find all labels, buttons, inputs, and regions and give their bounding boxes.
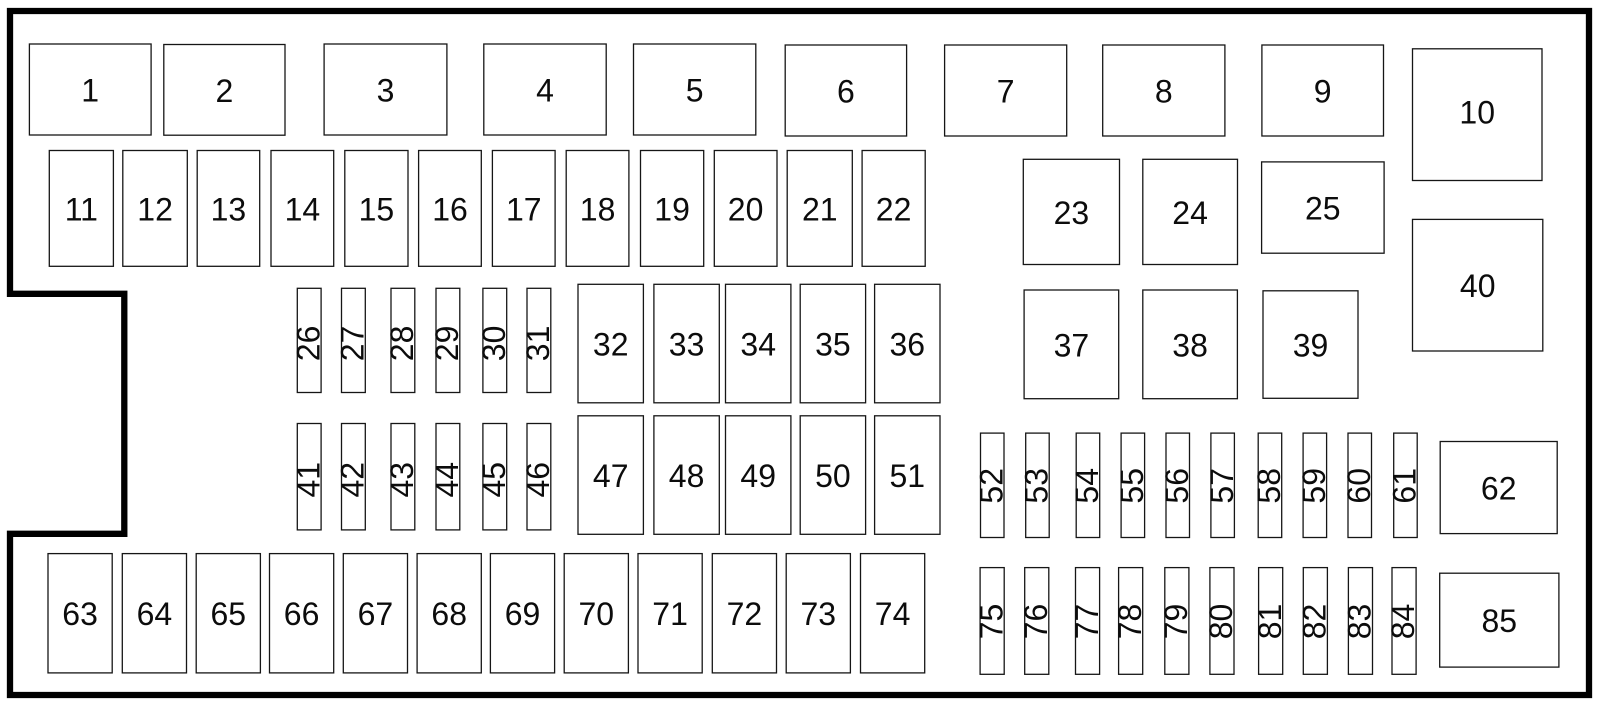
- svg-text:55: 55: [1114, 468, 1150, 504]
- svg-text:60: 60: [1341, 468, 1377, 504]
- svg-text:29: 29: [429, 326, 465, 362]
- svg-text:78: 78: [1112, 604, 1148, 640]
- svg-text:11: 11: [65, 191, 98, 227]
- svg-text:41: 41: [290, 462, 326, 498]
- svg-text:35: 35: [815, 327, 851, 363]
- svg-text:30: 30: [476, 326, 512, 362]
- svg-text:12: 12: [137, 191, 173, 227]
- svg-text:17: 17: [506, 191, 542, 227]
- svg-text:50: 50: [815, 458, 851, 494]
- svg-text:79: 79: [1158, 604, 1194, 640]
- svg-text:34: 34: [740, 327, 776, 363]
- svg-text:72: 72: [727, 596, 763, 632]
- svg-text:10: 10: [1459, 95, 1495, 131]
- svg-text:65: 65: [211, 596, 247, 632]
- svg-text:44: 44: [429, 462, 465, 498]
- svg-text:69: 69: [505, 596, 541, 632]
- svg-text:4: 4: [536, 73, 554, 109]
- svg-text:18: 18: [580, 191, 616, 227]
- svg-text:28: 28: [384, 326, 420, 362]
- svg-text:81: 81: [1252, 604, 1288, 640]
- svg-text:82: 82: [1297, 604, 1333, 640]
- svg-text:67: 67: [358, 596, 394, 632]
- svg-text:63: 63: [62, 596, 98, 632]
- svg-text:75: 75: [973, 604, 1009, 640]
- svg-text:8: 8: [1155, 74, 1173, 110]
- svg-text:32: 32: [593, 327, 629, 363]
- svg-text:83: 83: [1342, 604, 1378, 640]
- svg-text:70: 70: [579, 596, 615, 632]
- svg-text:57: 57: [1204, 468, 1240, 504]
- svg-text:42: 42: [335, 462, 371, 498]
- svg-text:73: 73: [801, 596, 837, 632]
- svg-text:5: 5: [686, 73, 704, 109]
- svg-text:51: 51: [890, 458, 926, 494]
- svg-text:59: 59: [1296, 468, 1332, 504]
- svg-text:15: 15: [359, 191, 395, 227]
- svg-text:46: 46: [520, 462, 556, 498]
- svg-text:45: 45: [476, 462, 512, 498]
- svg-text:9: 9: [1314, 74, 1332, 110]
- svg-text:27: 27: [335, 326, 371, 362]
- svg-text:33: 33: [669, 327, 705, 363]
- svg-text:85: 85: [1482, 603, 1518, 639]
- svg-text:77: 77: [1069, 604, 1105, 640]
- svg-text:13: 13: [211, 191, 247, 227]
- svg-text:48: 48: [669, 458, 705, 494]
- svg-text:22: 22: [876, 191, 912, 227]
- svg-text:64: 64: [137, 596, 173, 632]
- svg-text:49: 49: [740, 458, 776, 494]
- svg-text:43: 43: [384, 462, 420, 498]
- svg-text:56: 56: [1159, 468, 1195, 504]
- svg-text:24: 24: [1172, 195, 1208, 231]
- svg-text:21: 21: [802, 191, 838, 227]
- svg-text:47: 47: [593, 458, 629, 494]
- svg-text:62: 62: [1481, 471, 1517, 507]
- svg-text:53: 53: [1019, 468, 1055, 504]
- svg-text:19: 19: [654, 191, 690, 227]
- svg-text:7: 7: [997, 74, 1015, 110]
- svg-text:61: 61: [1387, 468, 1423, 504]
- svg-text:40: 40: [1460, 268, 1496, 304]
- svg-text:66: 66: [284, 596, 320, 632]
- svg-text:38: 38: [1172, 327, 1208, 363]
- svg-text:2: 2: [216, 73, 234, 109]
- svg-text:54: 54: [1069, 468, 1105, 504]
- svg-text:1: 1: [81, 73, 99, 109]
- svg-text:6: 6: [837, 74, 855, 110]
- svg-text:25: 25: [1305, 191, 1341, 227]
- svg-text:36: 36: [890, 327, 926, 363]
- svg-text:23: 23: [1054, 195, 1090, 231]
- svg-text:74: 74: [875, 596, 911, 632]
- svg-text:71: 71: [652, 596, 688, 632]
- svg-text:58: 58: [1251, 468, 1287, 504]
- svg-text:68: 68: [431, 596, 467, 632]
- svg-text:76: 76: [1018, 604, 1054, 640]
- svg-text:84: 84: [1385, 604, 1421, 640]
- svg-text:14: 14: [285, 191, 321, 227]
- svg-text:31: 31: [520, 326, 556, 362]
- svg-text:16: 16: [432, 191, 468, 227]
- svg-text:80: 80: [1203, 604, 1239, 640]
- svg-text:39: 39: [1293, 328, 1329, 364]
- svg-text:3: 3: [377, 73, 395, 109]
- svg-text:52: 52: [974, 468, 1010, 504]
- svg-text:37: 37: [1054, 327, 1090, 363]
- svg-text:26: 26: [290, 326, 326, 362]
- svg-text:20: 20: [728, 191, 764, 227]
